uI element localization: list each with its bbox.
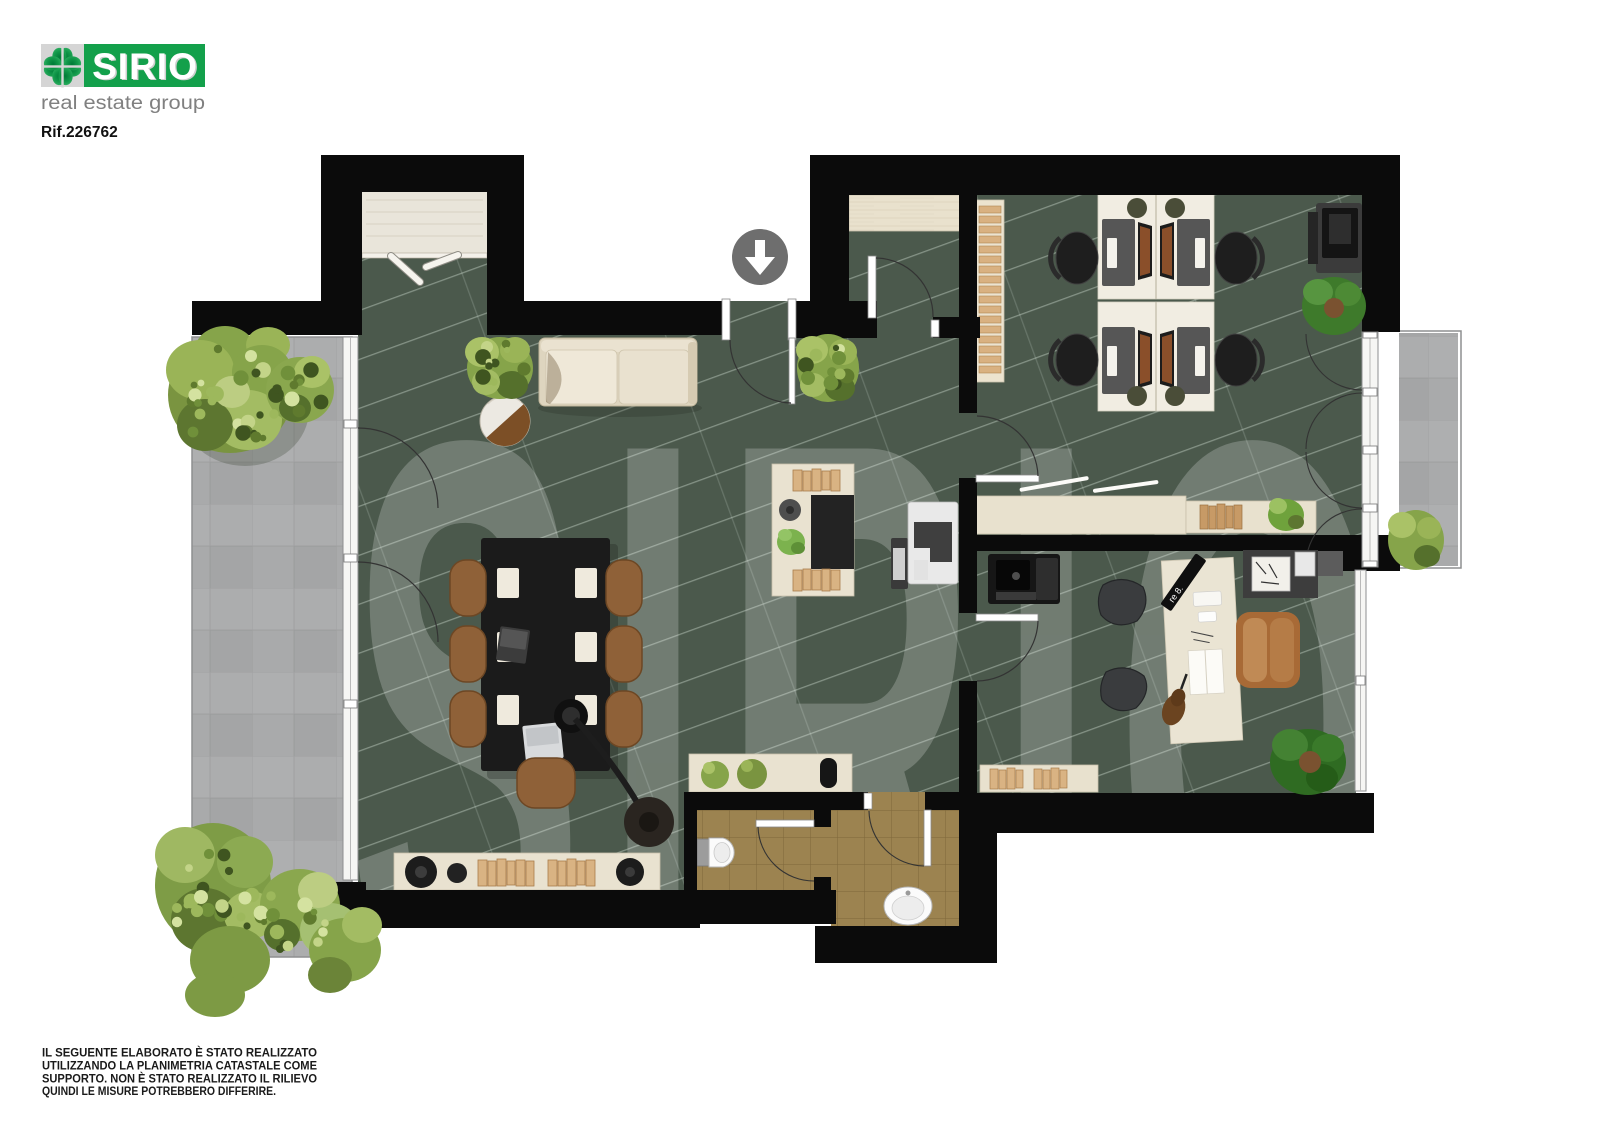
svg-text:Rif.226762: Rif.226762 xyxy=(41,124,118,141)
svg-text:UTILIZZANDO LA PLANIMETRIA CAT: UTILIZZANDO LA PLANIMETRIA CATASTALE COM… xyxy=(42,1059,317,1073)
svg-text:QUINDI LE MISURE POTREBBERO DI: QUINDI LE MISURE POTREBBERO DIFFERIRE. xyxy=(42,1084,276,1098)
svg-text:real estate group: real estate group xyxy=(41,93,205,114)
svg-text:IL SEGUENTE ELABORATO È STATO: IL SEGUENTE ELABORATO È STATO REALIZZATO xyxy=(42,1045,317,1060)
svg-text:SIRIO: SIRIO xyxy=(92,46,198,87)
